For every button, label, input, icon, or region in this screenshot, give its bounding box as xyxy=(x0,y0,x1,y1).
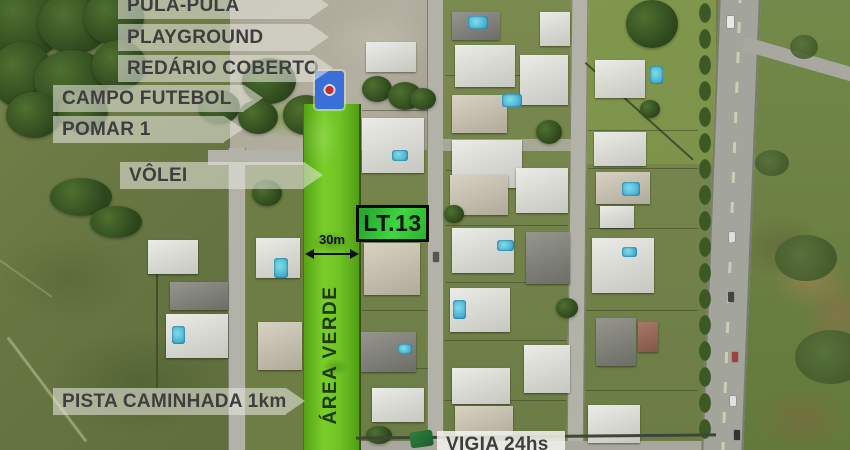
pool xyxy=(274,258,288,278)
banner-pista-caminhada: PISTA CAMINHADA 1km xyxy=(53,388,286,415)
pool xyxy=(172,326,185,344)
lot-line xyxy=(588,130,698,131)
house xyxy=(595,60,645,98)
car xyxy=(433,252,439,262)
arrow-right-icon xyxy=(310,0,329,18)
satellite-map: ÁREA VERDE 30m LT.13 PULA-PULA PLAYGROUN… xyxy=(0,0,850,450)
arrow-right-icon xyxy=(314,55,333,81)
arrow-right-icon xyxy=(304,162,323,188)
banner-campo-futebol: CAMPO FUTEBOL xyxy=(53,85,244,112)
tree xyxy=(556,298,578,318)
house xyxy=(148,240,198,274)
banner-campo-futebol-label: CAMPO FUTEBOL xyxy=(62,88,232,110)
house xyxy=(596,318,636,366)
tree xyxy=(410,88,436,110)
lot-line xyxy=(359,104,361,450)
lot-line xyxy=(588,228,698,229)
car xyxy=(729,232,735,242)
house xyxy=(372,388,424,422)
house xyxy=(362,118,424,173)
tree-hedge-line xyxy=(698,0,712,442)
bush xyxy=(795,330,850,384)
lot-line xyxy=(586,310,698,311)
lot-line xyxy=(362,110,428,111)
house xyxy=(594,132,646,166)
house xyxy=(366,42,416,72)
tree xyxy=(366,426,392,444)
lot-line xyxy=(362,310,428,311)
banner-redario-coberto-label: REDÁRIO COBERTO xyxy=(127,58,319,80)
street xyxy=(427,0,444,450)
house xyxy=(364,243,420,295)
guard-house xyxy=(409,429,434,448)
frontage-measure-arrow xyxy=(305,248,359,260)
house xyxy=(455,45,515,87)
banner-vigia-24hs-label: VIGIA 24hs xyxy=(446,434,549,450)
house xyxy=(638,322,658,352)
lot-line xyxy=(446,225,568,226)
pool xyxy=(622,247,637,257)
house xyxy=(526,232,570,284)
pool xyxy=(468,16,488,29)
house xyxy=(258,322,302,370)
car xyxy=(732,352,738,362)
lot-13-marker: LT.13 xyxy=(356,205,429,242)
tree xyxy=(536,120,562,144)
lot-line xyxy=(444,340,566,341)
tree xyxy=(640,100,660,118)
road-center-line xyxy=(721,0,742,450)
lot-line xyxy=(588,168,698,169)
fence-line xyxy=(156,268,158,388)
measure-arrowhead-left-icon xyxy=(305,249,314,259)
pool xyxy=(453,300,466,319)
banner-playground-label: PLAYGROUND xyxy=(127,27,263,49)
pool xyxy=(502,94,522,107)
car xyxy=(730,396,736,406)
banner-pula-pula: PULA-PULA xyxy=(118,0,310,19)
tree xyxy=(90,206,142,238)
arrow-right-icon xyxy=(224,116,243,142)
banner-pomar-1: POMAR 1 xyxy=(53,116,224,143)
green-area-label: ÁREA VERDE xyxy=(319,270,343,440)
house xyxy=(452,95,507,133)
banner-volei: VÔLEI xyxy=(120,162,304,189)
banner-volei-label: VÔLEI xyxy=(129,165,188,187)
house xyxy=(170,282,228,310)
banner-pista-caminhada-label: PISTA CAMINHADA 1km xyxy=(62,391,287,413)
banner-pula-pula-label: PULA-PULA xyxy=(127,0,239,17)
arrow-right-icon xyxy=(310,24,329,50)
banner-vigia-24hs: VIGIA 24hs xyxy=(437,431,565,450)
arrow-right-icon xyxy=(244,85,263,111)
bush xyxy=(790,35,818,59)
bush xyxy=(775,235,837,281)
car xyxy=(727,16,734,28)
pool xyxy=(497,240,514,251)
pool xyxy=(392,150,408,161)
tree xyxy=(444,205,464,223)
measure-line xyxy=(314,253,350,255)
tree xyxy=(626,0,678,48)
house xyxy=(452,368,510,404)
house xyxy=(540,12,570,46)
pool xyxy=(650,66,663,84)
bush xyxy=(755,150,789,176)
house xyxy=(520,55,568,105)
arrow-right-icon xyxy=(286,388,305,414)
pool xyxy=(398,344,412,354)
house xyxy=(600,206,634,228)
house xyxy=(516,168,568,213)
house xyxy=(524,345,570,393)
lot-line xyxy=(586,390,698,391)
car xyxy=(728,292,734,302)
banner-redario-coberto: REDÁRIO COBERTO xyxy=(118,55,314,82)
pool xyxy=(622,182,640,196)
dirt-path xyxy=(0,244,52,297)
measure-arrowhead-right-icon xyxy=(350,249,359,259)
frontage-measure-label: 30m xyxy=(306,232,358,247)
banner-playground: PLAYGROUND xyxy=(118,24,310,51)
banner-pomar-1-label: POMAR 1 xyxy=(62,119,151,141)
car xyxy=(734,430,740,440)
lot-13-label: LT.13 xyxy=(363,210,421,237)
